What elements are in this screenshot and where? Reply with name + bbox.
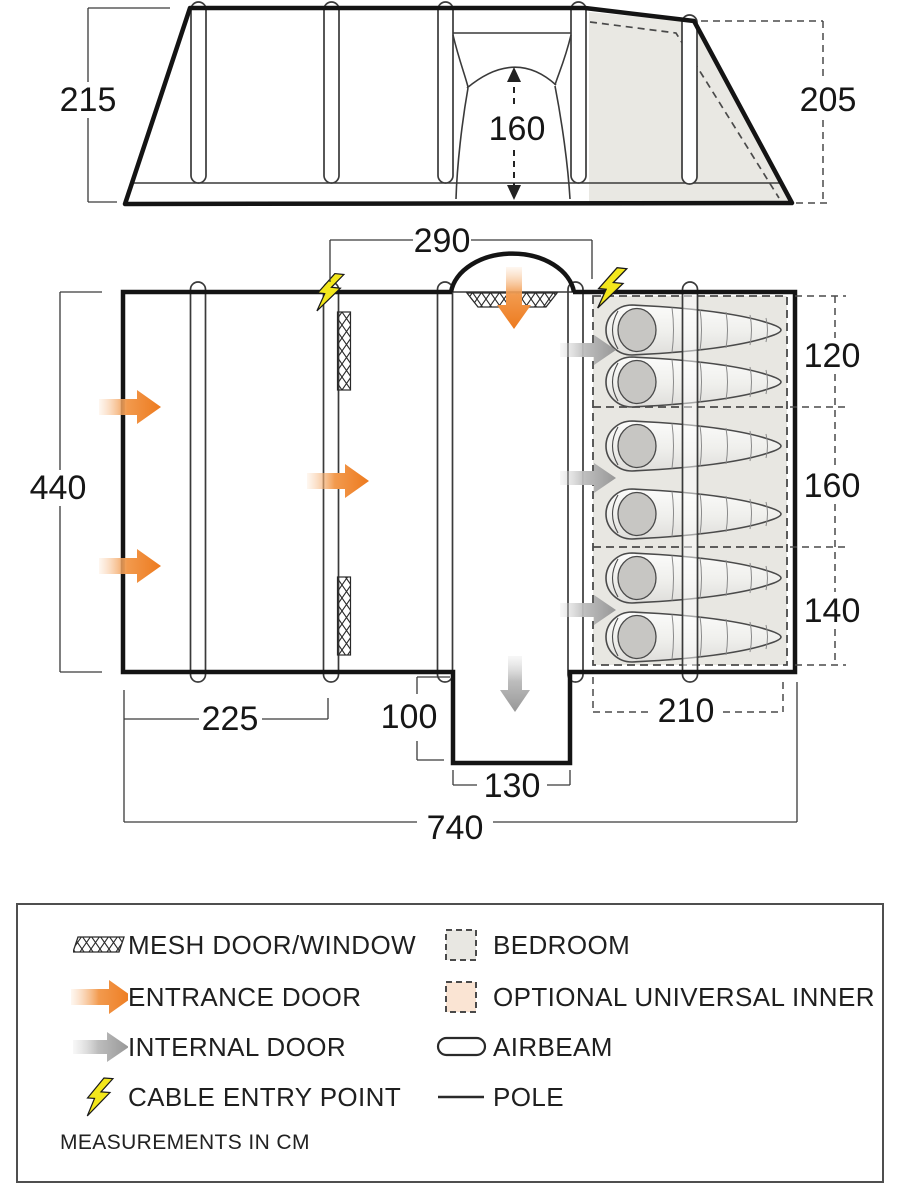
legend-label: OPTIONAL UNIVERSAL INNER — [493, 982, 875, 1013]
mesh-window-lower — [338, 577, 351, 655]
mesh-swatch-icon — [59, 936, 128, 954]
legend-label: POLE — [493, 1082, 564, 1113]
legend-label: BEDROOM — [493, 930, 630, 961]
elevation-pole-1 — [191, 2, 206, 183]
legend-label: INTERNAL DOOR — [128, 1032, 346, 1063]
porch-width-label: 130 — [484, 767, 541, 805]
entrance-arrow-icon — [59, 980, 128, 1014]
legend-item-airbeam: AIRBEAM — [430, 1027, 613, 1067]
measurements-note: MEASUREMENTS IN CM — [60, 1131, 310, 1155]
tent-diagram: 160 215 205 — [0, 0, 904, 880]
airbeam-icon — [430, 1035, 493, 1059]
legend-label: CABLE ENTRY POINT — [128, 1082, 401, 1113]
bedroom-2-label: 160 — [804, 467, 861, 505]
rear-height-label: 205 — [800, 81, 857, 119]
legend-label: MESH DOOR/WINDOW — [128, 930, 416, 961]
legend-box: MESH DOOR/WINDOW ENTRANCE DOOR INTERNAL … — [16, 903, 884, 1183]
legend-item-pole: POLE — [430, 1077, 564, 1117]
legend-item-bedroom: BEDROOM — [430, 925, 630, 965]
bedroom-3-label: 140 — [804, 592, 861, 630]
depth-label: 440 — [30, 469, 87, 507]
entrance-arrow-side-upper — [99, 390, 161, 424]
internal-arrow-icon — [59, 1032, 128, 1062]
elevation-view: 160 215 205 — [60, 2, 857, 204]
porch-depth-label: 100 — [381, 698, 438, 736]
door-height-dimension: 160 — [489, 67, 546, 200]
bedroom-swatch-icon — [430, 928, 493, 963]
elevation-pole-3 — [438, 2, 453, 183]
lightning-bolt-icon — [59, 1076, 128, 1118]
total-width-label: 740 — [427, 809, 484, 847]
door-height-label: 160 — [489, 110, 546, 148]
elevation-pole-2 — [324, 2, 339, 183]
floor-plan: 290 440 120 160 140 225 100 130 210 740 — [30, 222, 861, 847]
entrance-door-arrows — [99, 267, 531, 583]
optional-inner-swatch-icon — [430, 980, 493, 1015]
bedroom-1-label: 120 — [804, 337, 861, 375]
legend-item-entrance: ENTRANCE DOOR — [59, 977, 361, 1017]
living-width-label: 290 — [414, 222, 471, 260]
airbeam-1 — [191, 282, 206, 682]
legend-item-mesh: MESH DOOR/WINDOW — [59, 925, 416, 965]
entrance-arrow-side-lower — [99, 549, 161, 583]
legend-label: AIRBEAM — [493, 1032, 613, 1063]
front-height-label: 215 — [60, 81, 117, 119]
legend-item-internal: INTERNAL DOOR — [59, 1027, 346, 1067]
elevation-pole-5 — [682, 15, 697, 184]
tent-diagram-page: 160 215 205 — [0, 0, 904, 1200]
internal-arrow-porch — [500, 656, 530, 712]
elevation-pole-4 — [571, 2, 586, 183]
bedroom-depth-label: 210 — [658, 692, 715, 730]
mesh-window-upper — [338, 312, 351, 390]
legend-item-optional-inner: OPTIONAL UNIVERSAL INNER — [430, 977, 875, 1017]
airbeam-3 — [438, 282, 453, 682]
legend-item-cable: CABLE ENTRY POINT — [59, 1077, 401, 1117]
front-width-label: 225 — [202, 700, 259, 738]
legend-label: ENTRANCE DOOR — [128, 982, 361, 1013]
pole-icon — [430, 1093, 493, 1101]
airbeam-5 — [683, 282, 698, 682]
